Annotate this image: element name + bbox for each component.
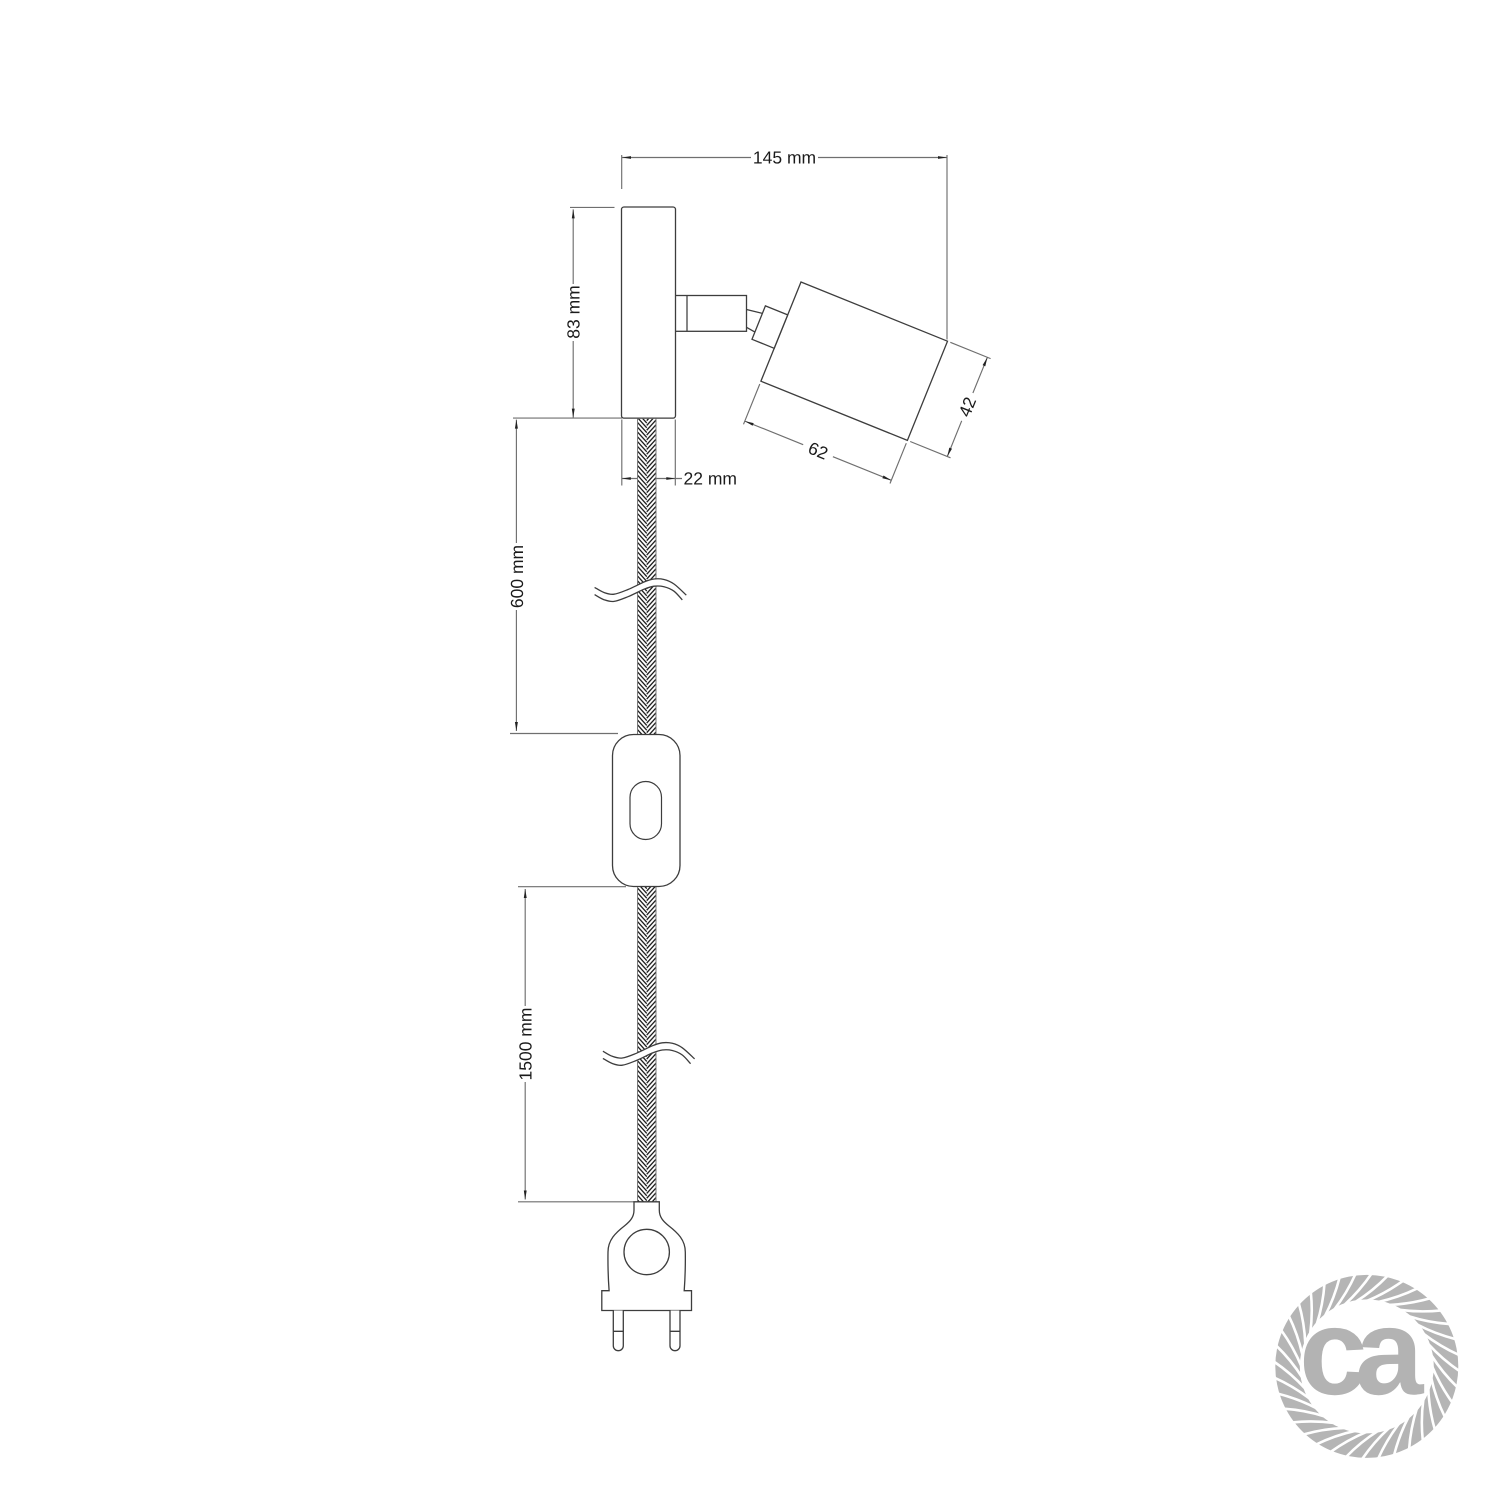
svg-text:22 mm: 22 mm bbox=[684, 469, 737, 489]
svg-text:83 mm: 83 mm bbox=[563, 285, 583, 338]
svg-text:600 mm: 600 mm bbox=[507, 545, 527, 608]
svg-text:145 mm: 145 mm bbox=[753, 148, 816, 168]
svg-text:1500 mm: 1500 mm bbox=[516, 1008, 536, 1081]
svg-text:ca: ca bbox=[1299, 1284, 1425, 1421]
